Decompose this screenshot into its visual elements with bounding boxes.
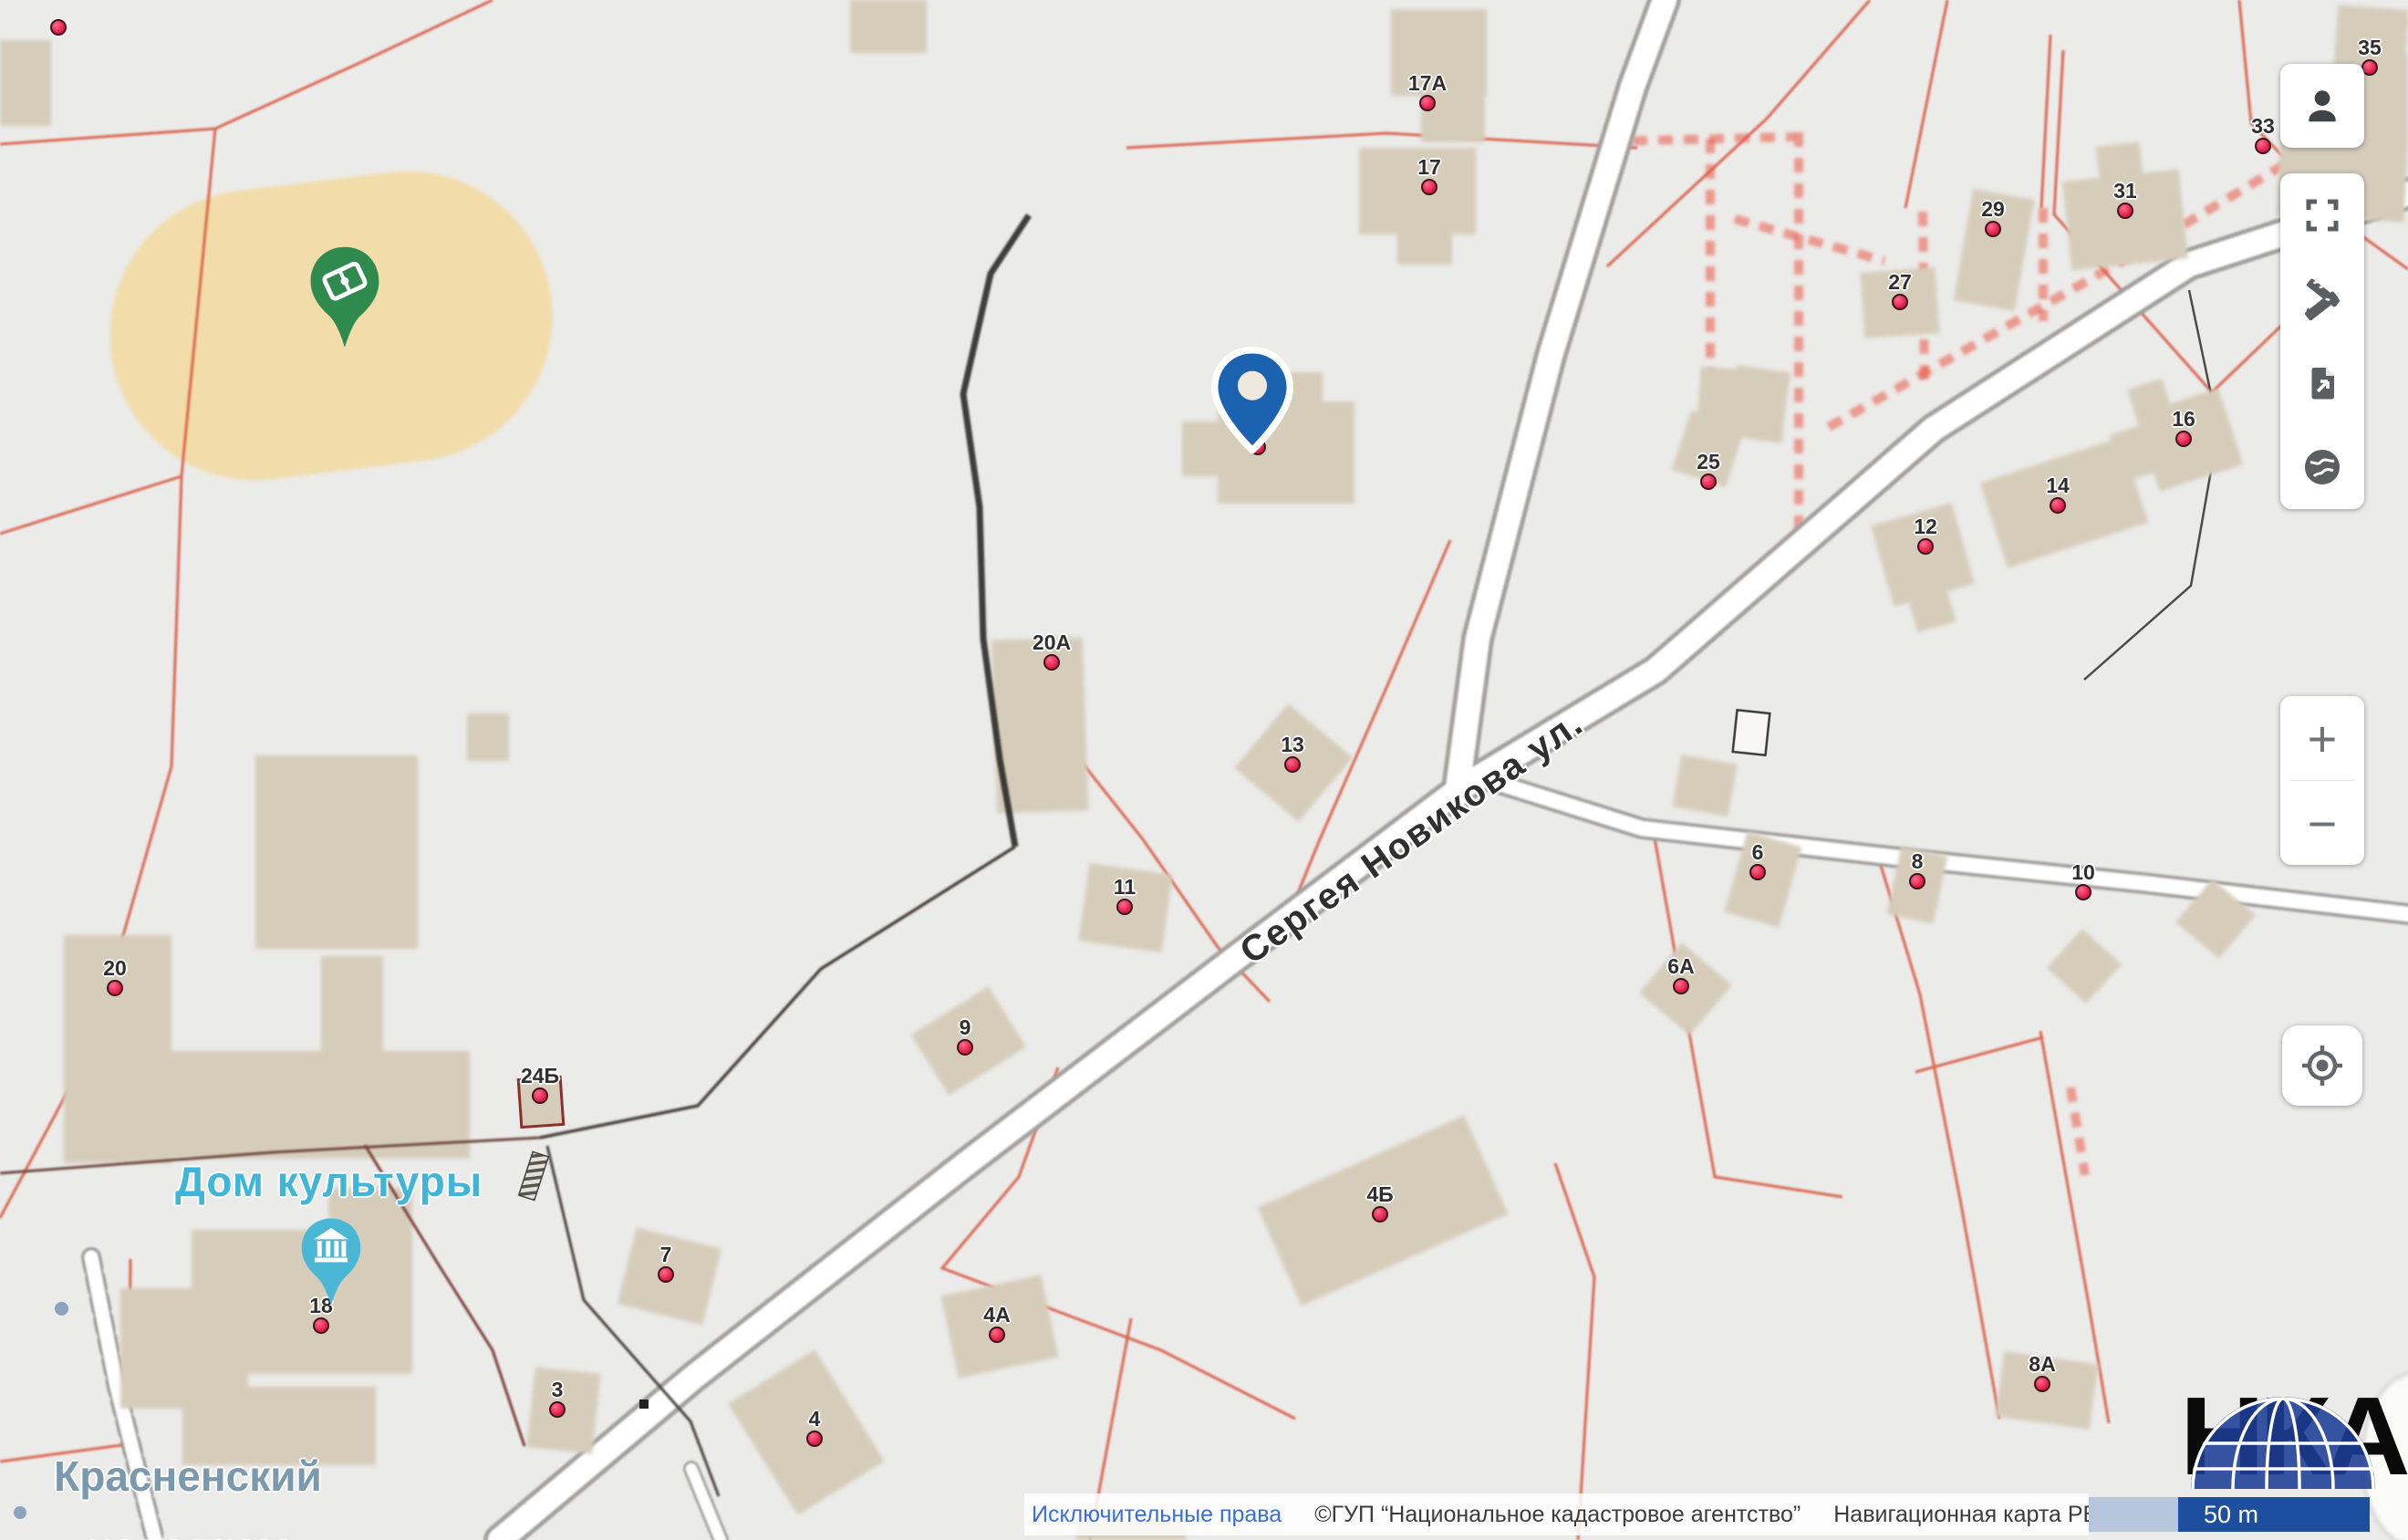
location-pin[interactable] xyxy=(1207,346,1298,453)
marker-label: 6 xyxy=(1752,840,1764,865)
marker-dot xyxy=(2255,138,2271,154)
marker-label: 20А xyxy=(1033,630,1071,655)
marker-dot xyxy=(549,1401,566,1418)
poi-label-line1: Красненский xyxy=(24,1440,352,1513)
attribution-bar: Исключительные права ©ГУП “Национальное … xyxy=(1024,1493,2089,1535)
map-application: Сергея Новикова ул. Дом культуры Краснен… xyxy=(0,0,2408,1540)
marker-label: 10 xyxy=(2071,860,2095,885)
marker-dot xyxy=(532,1087,548,1104)
marker-label: 24Б xyxy=(521,1064,559,1088)
file-export-icon xyxy=(2302,363,2342,403)
marker-dot xyxy=(1909,873,1925,890)
marker-dot xyxy=(989,1327,1005,1343)
marker-dot xyxy=(2034,1376,2050,1392)
scale-label: 50 m xyxy=(2204,1501,2258,1529)
marker-label: 29 xyxy=(1981,197,2005,222)
marker-dot xyxy=(1284,756,1301,773)
fullscreen-icon xyxy=(2302,195,2342,235)
marker-dot xyxy=(658,1266,674,1283)
marker-dot xyxy=(1985,221,2001,237)
fullscreen-button[interactable] xyxy=(2280,173,2364,257)
nka-logo: НКА xyxy=(2184,1372,2408,1489)
measure-button[interactable] xyxy=(2280,257,2364,341)
marker-label: 4 xyxy=(809,1407,821,1431)
marker-label: 13 xyxy=(1281,733,1304,757)
poi-dot xyxy=(14,1506,26,1519)
marker-dot xyxy=(1421,179,1438,195)
zoom-out-button[interactable]: − xyxy=(2280,781,2364,865)
measure-tools-icon xyxy=(2301,278,2343,320)
culture-house-pin[interactable] xyxy=(296,1213,366,1314)
map-overlay: Дом культуры Красненский исполком 17А171… xyxy=(0,0,2408,1540)
marker-dot xyxy=(1700,473,1717,490)
export-file-button[interactable] xyxy=(2280,341,2364,425)
marker-label: 6А xyxy=(1667,954,1694,979)
marker-label: 3 xyxy=(552,1378,564,1402)
marker-label: 20 xyxy=(103,956,127,981)
gps-crosshair-icon xyxy=(2300,1044,2344,1087)
marker-label: 9 xyxy=(960,1015,971,1040)
marker-label: 14 xyxy=(2046,473,2070,498)
marker-dot xyxy=(1116,899,1133,915)
marker-label: 11 xyxy=(1114,875,1136,900)
marker-label: 8А xyxy=(2029,1352,2055,1377)
marker-label: 35 xyxy=(2358,36,2382,60)
scale-bar: 50 m xyxy=(2178,1497,2370,1532)
locate-button[interactable] xyxy=(2282,1025,2362,1106)
marker-label: 25 xyxy=(1697,450,1720,474)
sports-ground-pin[interactable] xyxy=(305,239,385,359)
zoom-panel: + − xyxy=(2280,696,2364,865)
marker-dot xyxy=(1892,294,1908,310)
nka-logo-graphic: НКА xyxy=(2184,1372,2408,1489)
marker-label: 31 xyxy=(2113,179,2137,203)
tools-panel xyxy=(2280,173,2364,509)
marker-dot xyxy=(957,1039,973,1056)
zoom-in-button[interactable]: + xyxy=(2280,696,2364,780)
exclusive-rights-link[interactable]: Исключительные права xyxy=(1032,1502,1282,1528)
marker-dot xyxy=(1749,864,1766,880)
account-panel xyxy=(2280,64,2364,148)
person-icon xyxy=(2301,85,2343,127)
marker-label: 4Б xyxy=(1366,1182,1393,1207)
account-button[interactable] xyxy=(2280,64,2364,148)
marker-dot xyxy=(1419,95,1436,111)
marker-label: 12 xyxy=(1914,515,1937,539)
marker-label: 27 xyxy=(1888,270,1912,295)
poi-label-executive-committee: Красненский исполком xyxy=(24,1440,352,1540)
marker-label: 17 xyxy=(1417,155,1441,180)
marker-label: 17А xyxy=(1408,71,1447,96)
marker-label: 16 xyxy=(2172,407,2195,432)
copyright-text: ©ГУП “Национальное кадастровое агентство… xyxy=(1314,1502,1801,1528)
marker-dot xyxy=(50,19,67,36)
marker-dot xyxy=(806,1431,823,1447)
globe-button[interactable] xyxy=(2280,425,2364,509)
marker-label: 4А xyxy=(983,1303,1010,1327)
marker-dot xyxy=(2075,884,2091,900)
marker-dot xyxy=(107,980,123,996)
marker-dot xyxy=(1917,538,1934,555)
marker-dot xyxy=(2175,431,2192,447)
poi-label-line2: исполком xyxy=(24,1513,352,1540)
marker-label: 8 xyxy=(1912,849,1924,874)
marker-dot xyxy=(1043,654,1060,671)
scale-bar-segment xyxy=(2089,1497,2178,1532)
poi-dot xyxy=(55,1302,68,1316)
marker-label: 33 xyxy=(2251,114,2275,139)
map-name-text: Навигационная карта РБ xyxy=(1833,1502,2098,1528)
marker-dot xyxy=(1673,978,1689,994)
marker-dot xyxy=(313,1317,329,1334)
marker-dot xyxy=(2050,497,2066,514)
locate-panel xyxy=(2282,1025,2362,1106)
marker-dot xyxy=(1372,1206,1388,1223)
pin-hole xyxy=(1238,371,1267,401)
poi-label-house-of-culture: Дом культуры xyxy=(175,1157,483,1206)
marker-dot xyxy=(2117,203,2133,219)
marker-label: 7 xyxy=(660,1243,672,1267)
globe-icon xyxy=(2301,446,2343,488)
